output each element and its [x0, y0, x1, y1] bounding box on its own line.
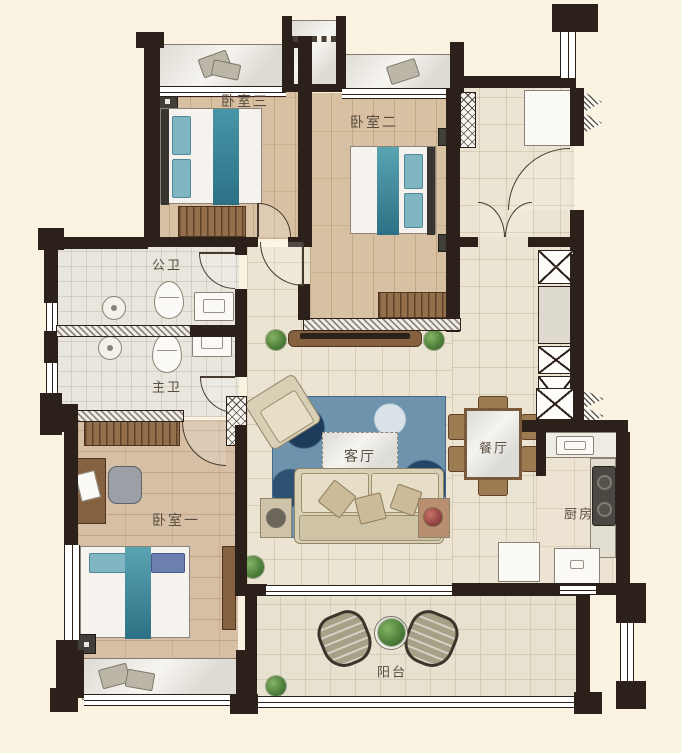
- wall: [235, 247, 247, 255]
- flowers: [424, 508, 442, 526]
- bed-headboard: [161, 109, 169, 205]
- shoe-cabinet: [524, 90, 572, 146]
- wall: [450, 76, 576, 88]
- bed-pillow: [151, 553, 185, 573]
- shower-head: [102, 296, 126, 320]
- dishwasher-symbol: [566, 556, 588, 574]
- bedroom2-wardrobe: [378, 292, 456, 318]
- tv: [300, 333, 410, 339]
- window: [342, 88, 458, 99]
- bed-pillow: [172, 116, 191, 155]
- bedroom1-cabinet: [222, 546, 236, 630]
- bed-pillow: [172, 159, 191, 198]
- bedroom2-door: [302, 242, 304, 286]
- wall: [336, 16, 346, 92]
- bedroom3-bed: [160, 108, 262, 204]
- wall: [298, 284, 310, 320]
- wall-block: [616, 681, 646, 709]
- floor-plan: 卧室三 卧室二 公卫 主卫 卧室一 客厅 餐厅 厨房 阳台: [0, 0, 681, 753]
- bed-runner: [125, 547, 151, 639]
- window: [560, 32, 576, 78]
- flue-shaft: [536, 388, 574, 420]
- bedroom2-bed: [350, 146, 436, 234]
- shaft: [538, 346, 574, 374]
- wall-corner: [38, 228, 64, 250]
- room-label-bedroom2: 卧室二: [350, 112, 398, 132]
- burner: [597, 502, 612, 517]
- bedroom1-wardrobe: [84, 420, 180, 446]
- toilet: [154, 281, 184, 319]
- bed-headboard: [427, 147, 435, 235]
- flue-symbol: [584, 390, 604, 408]
- bed-runner: [377, 147, 399, 235]
- window: [46, 363, 58, 393]
- wall: [235, 584, 267, 596]
- wall: [576, 595, 590, 695]
- wall-corner: [50, 688, 78, 712]
- room-label-dining-room: 餐厅: [479, 438, 509, 457]
- room-label-master-bathroom: 主卫: [152, 377, 182, 396]
- balcony-plant: [378, 619, 405, 646]
- bed-pillow: [89, 553, 127, 573]
- wall: [282, 16, 292, 90]
- wall-hatched: [66, 410, 184, 422]
- wall-hatched: [303, 318, 461, 331]
- kitchen-sink: [556, 436, 594, 455]
- wall: [235, 425, 247, 585]
- shower-head: [98, 336, 122, 360]
- bed-pillow: [404, 193, 423, 228]
- room-label-balcony: 阳台: [377, 662, 407, 681]
- window: [560, 585, 596, 595]
- plant: [266, 330, 286, 350]
- closet-column: [460, 92, 476, 148]
- wall-block: [616, 583, 646, 623]
- shaft: [538, 250, 574, 284]
- wall-corner: [230, 694, 258, 714]
- fridge: [498, 542, 540, 582]
- wall-block: [552, 4, 598, 32]
- plant: [424, 330, 444, 350]
- wall: [298, 36, 312, 244]
- wall: [245, 596, 257, 706]
- wall-corner: [574, 692, 602, 714]
- wall: [235, 289, 247, 377]
- shaft: [538, 286, 574, 344]
- room-label-living-room: 客厅: [344, 446, 376, 466]
- bedroom3-wardrobe: [178, 206, 246, 237]
- entry-door-leaf: [584, 92, 602, 112]
- wall: [446, 88, 460, 332]
- toilet: [152, 333, 182, 373]
- wall-block: [52, 404, 78, 432]
- window: [258, 696, 582, 708]
- wall: [536, 430, 546, 476]
- wall: [190, 325, 237, 337]
- wall: [570, 88, 584, 146]
- stove: [592, 466, 616, 526]
- window: [64, 545, 80, 640]
- wall: [144, 237, 258, 247]
- window: [84, 694, 236, 706]
- entry-door-leaf: [584, 113, 602, 133]
- wall: [528, 237, 574, 247]
- table-lamp: [266, 508, 286, 528]
- dining-chair: [478, 478, 508, 496]
- bedroom1-bed: [80, 546, 190, 638]
- room-label-kitchen: 厨房: [564, 504, 594, 523]
- bathroom-sink: [194, 292, 234, 321]
- room-label-bedroom1: 卧室一: [152, 510, 200, 530]
- wall: [452, 583, 630, 595]
- wall: [150, 40, 160, 90]
- bathroom-door: [199, 252, 235, 254]
- bed-pillow: [404, 154, 423, 189]
- bathroom-door: [200, 376, 235, 378]
- bed-runner: [213, 109, 239, 205]
- desk-chair: [108, 466, 142, 504]
- bedroom3-door: [257, 203, 259, 237]
- burner: [597, 475, 612, 490]
- wall: [616, 432, 630, 584]
- wall: [44, 249, 58, 303]
- room-label-bedroom3: 卧室三: [221, 91, 269, 111]
- small-plant: [266, 676, 286, 696]
- room-label-public-bathroom: 公卫: [152, 255, 182, 274]
- window: [620, 623, 634, 681]
- wall: [282, 84, 346, 92]
- wall-hatched: [56, 325, 192, 337]
